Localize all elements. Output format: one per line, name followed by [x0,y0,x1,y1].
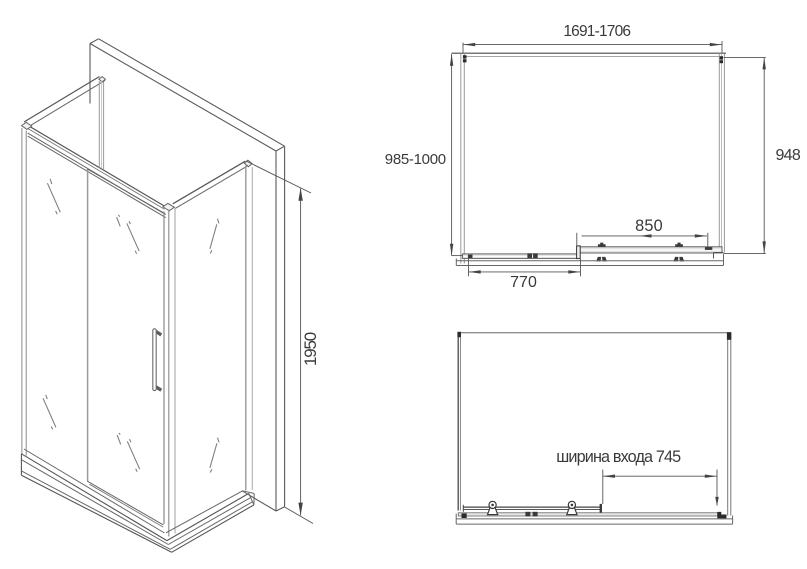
svg-text:948: 948 [775,147,800,164]
svg-text:985-1000: 985-1000 [385,151,446,168]
svg-text:850: 850 [635,217,663,235]
svg-text:1691-1706: 1691-1706 [563,23,630,40]
svg-text:770: 770 [510,274,537,291]
svg-text:ширина входа 745: ширина входа 745 [556,448,681,466]
svg-text:1950: 1950 [301,332,320,366]
